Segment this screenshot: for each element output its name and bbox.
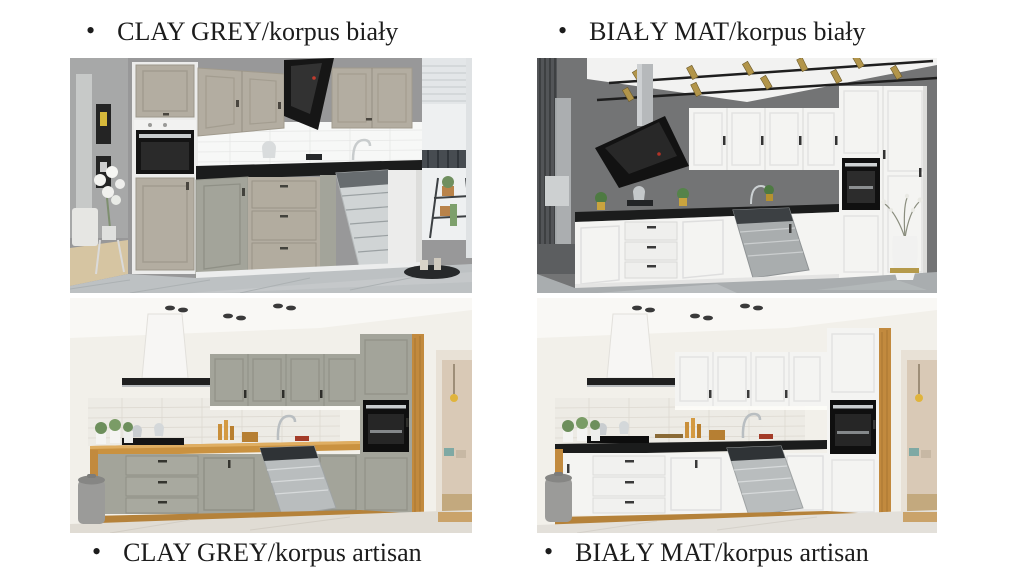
tall-oven-cabinet: [132, 62, 198, 274]
counter-plants: [95, 419, 133, 444]
kitchen-photo-clay-grey-korpus-bialy: [70, 58, 472, 293]
bullet-icon: •: [544, 537, 553, 567]
caption-bialy-mat-korpus-artisan: • BIAŁY MAT/korpus artisan: [544, 538, 869, 568]
caption-label: CLAY GREY/korpus artisan: [123, 538, 422, 568]
oven: [363, 400, 409, 452]
oven: [830, 400, 876, 454]
counter-plants: [562, 417, 600, 442]
upper-cabinets: [675, 352, 827, 410]
bullet-icon: •: [92, 537, 101, 567]
kitchen-photo-bialy-mat-korpus-bialy: [537, 58, 937, 293]
waste-bin: [545, 472, 572, 522]
kitchen-photo-bialy-mat-korpus-artisan: [537, 298, 937, 533]
base-cabinets: [196, 170, 422, 280]
waste-bin: [78, 474, 105, 524]
kitchen-photo-clay-grey-korpus-artisan: [70, 298, 472, 533]
caption-bialy-mat-korpus-bialy: • BIAŁY MAT/korpus biały: [558, 17, 865, 47]
drawer-unit: [248, 177, 320, 273]
oven: [136, 130, 194, 174]
caption-label: BIAŁY MAT/korpus artisan: [575, 538, 869, 568]
tall-cabinets: [360, 334, 424, 516]
drawer-unit: [126, 456, 198, 513]
upper-cabinets: [210, 354, 360, 410]
balcony-window: [422, 58, 472, 258]
bullet-icon: •: [558, 16, 567, 46]
upper-cabinets: [689, 108, 839, 170]
doorway-room: [901, 350, 937, 533]
caption-clay-grey-korpus-bialy: • CLAY GREY/korpus biały: [86, 17, 398, 47]
doorway-room: [436, 350, 472, 533]
bullet-icon: •: [86, 16, 95, 46]
caption-label: CLAY GREY/korpus biały: [117, 17, 398, 47]
oven: [842, 158, 880, 210]
tall-cabinets: [827, 328, 891, 516]
drawer-unit: [625, 222, 677, 278]
caption-clay-grey-korpus-artisan: • CLAY GREY/korpus artisan: [92, 538, 422, 568]
drawer-unit: [593, 456, 665, 513]
caption-label: BIAŁY MAT/korpus biały: [589, 17, 865, 47]
